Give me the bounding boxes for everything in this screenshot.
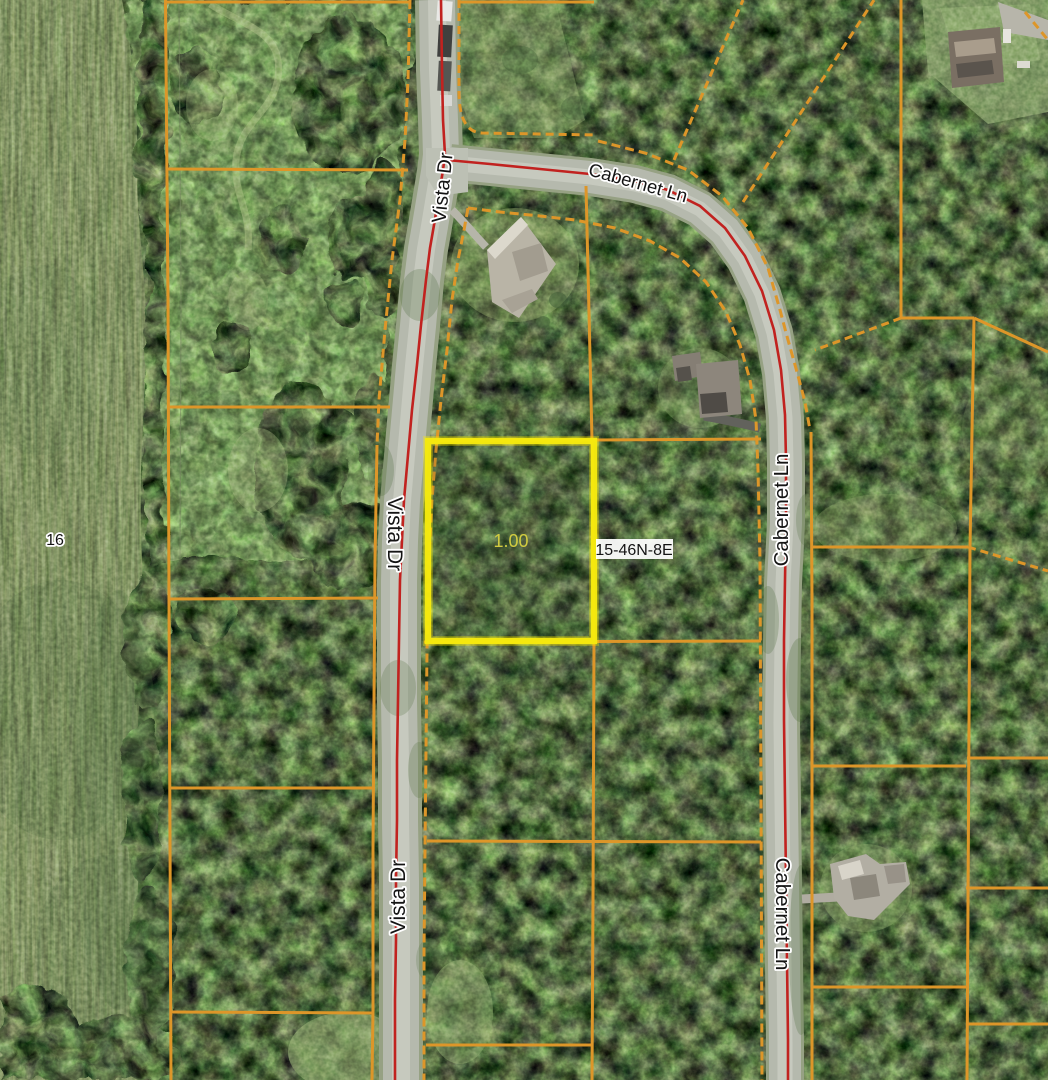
- svg-text:Vista Dr: Vista Dr: [383, 497, 406, 571]
- svg-text:Cabernet Ln: Cabernet Ln: [771, 858, 794, 971]
- svg-text:1.00: 1.00: [493, 531, 528, 551]
- svg-text:Cabernet Ln: Cabernet Ln: [770, 454, 793, 567]
- svg-text:15-46N-8E: 15-46N-8E: [595, 542, 672, 559]
- svg-text:Vista Dr: Vista Dr: [387, 860, 410, 934]
- svg-text:16: 16: [46, 532, 64, 549]
